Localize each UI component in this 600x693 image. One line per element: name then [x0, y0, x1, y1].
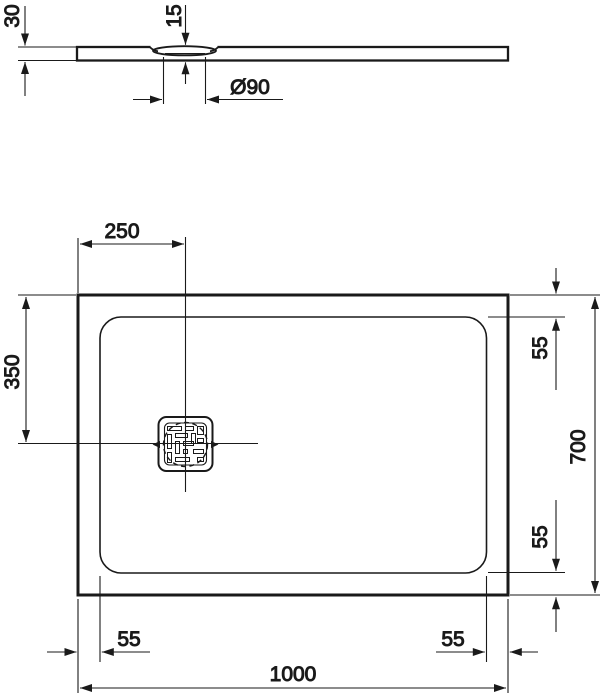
- dim-label-edge-bottom-left: 55: [117, 628, 140, 651]
- drain-centerlines: [18, 237, 258, 492]
- dim-55-right-top-group: [488, 268, 600, 390]
- dim-350-group: [18, 295, 76, 442]
- dim-label-depth: 700: [567, 429, 590, 464]
- profile-tray-body: [77, 44, 508, 61]
- centerline-tick-right: [211, 441, 219, 448]
- plan-view: 250 350 55 700 55: [1, 220, 600, 693]
- dim-250-group: [78, 238, 184, 293]
- dim-label-drain-diameter: Ø90: [230, 76, 270, 99]
- dim-label-edge-bottom-right: 55: [529, 525, 552, 548]
- dim-55-right-bottom-group: [488, 500, 565, 632]
- dim-label-profile-height: 30: [1, 4, 24, 27]
- dim-label-drain-depth: 15: [163, 4, 186, 27]
- dim-label-drain-offset-y: 350: [1, 354, 24, 389]
- dim-label-drain-offset-x: 250: [104, 220, 139, 243]
- technical-drawing-canvas: 30 15 Ø90: [0, 0, 600, 693]
- centerline-tick-left: [153, 441, 161, 448]
- profile-view: 30 15 Ø90: [1, 4, 508, 104]
- dim-label-edge-bottom-far-right: 55: [441, 628, 464, 651]
- dim-label-width: 1000: [270, 663, 317, 686]
- dim-30-group: [18, 6, 76, 96]
- tray-outer-edge: [78, 295, 508, 595]
- dim-label-edge-top-right: 55: [529, 336, 552, 359]
- drawing-svg: 30 15 Ø90: [0, 0, 600, 693]
